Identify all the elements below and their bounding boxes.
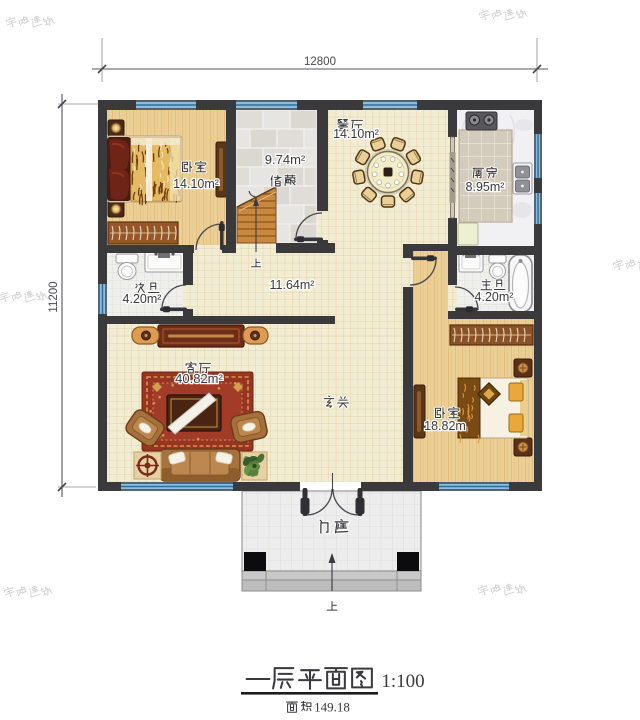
svg-text:40.82m²: 40.82m²: [175, 371, 223, 386]
svg-text:11200: 11200: [48, 281, 60, 312]
svg-text:9.74m²: 9.74m²: [265, 152, 306, 167]
svg-text:4.20m²: 4.20m²: [475, 290, 514, 304]
svg-text:14.10m²: 14.10m²: [173, 177, 219, 191]
svg-text:1:100: 1:100: [381, 671, 424, 692]
svg-text:14.10m²: 14.10m²: [333, 127, 379, 141]
svg-text:4.20m²: 4.20m²: [123, 292, 162, 306]
svg-text:18.82m: 18.82m: [424, 419, 466, 433]
svg-text:8.95m²: 8.95m²: [466, 180, 505, 194]
svg-text:11.64m²: 11.64m²: [270, 278, 315, 292]
svg-text:12800: 12800: [304, 56, 336, 68]
svg-text:149.18: 149.18: [314, 700, 350, 715]
